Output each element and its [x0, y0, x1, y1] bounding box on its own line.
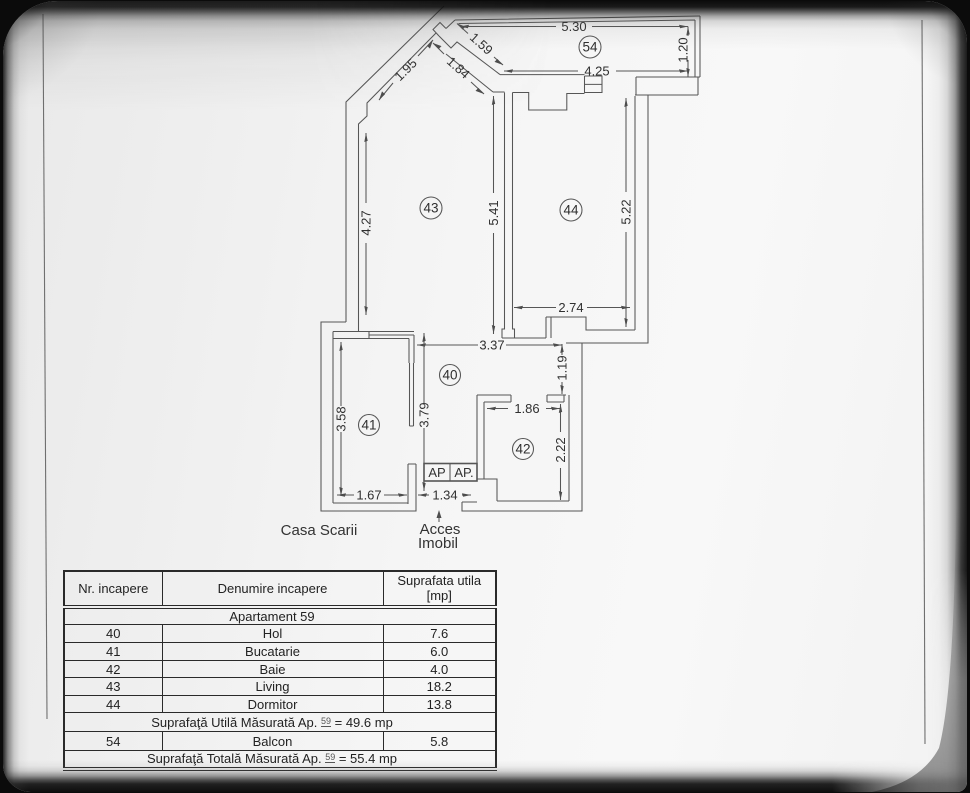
svg-text:4.27: 4.27: [359, 210, 374, 235]
svg-text:2.74: 2.74: [558, 300, 583, 315]
svg-text:5.30: 5.30: [561, 19, 586, 34]
svg-text:40: 40: [442, 368, 457, 383]
svg-text:44: 44: [563, 203, 579, 218]
svg-text:1.95: 1.95: [391, 55, 420, 84]
svg-text:1.19: 1.19: [555, 355, 570, 380]
svg-text:5.41: 5.41: [486, 200, 501, 225]
svg-text:41: 41: [361, 418, 376, 433]
svg-text:1.86: 1.86: [514, 401, 539, 416]
svg-text:AP.: AP.: [454, 465, 473, 480]
svg-text:1.34: 1.34: [432, 488, 457, 503]
svg-text:54: 54: [582, 40, 598, 55]
svg-text:4.25: 4.25: [584, 64, 609, 79]
svg-text:1.20: 1.20: [676, 37, 691, 62]
svg-text:1.67: 1.67: [356, 488, 381, 503]
svg-text:3.37: 3.37: [479, 338, 504, 353]
svg-text:AP: AP: [428, 465, 445, 480]
svg-text:Imobil: Imobil: [418, 535, 458, 552]
svg-text:43: 43: [423, 201, 438, 216]
svg-text:Casa Scarii: Casa Scarii: [281, 522, 358, 539]
svg-text:1.59: 1.59: [467, 30, 496, 58]
svg-text:3.79: 3.79: [417, 402, 432, 427]
svg-text:42: 42: [515, 442, 530, 457]
svg-text:1.84: 1.84: [444, 54, 473, 82]
svg-text:3.58: 3.58: [334, 406, 349, 431]
svg-text:2.22: 2.22: [553, 437, 568, 462]
svg-text:5.22: 5.22: [619, 199, 634, 224]
